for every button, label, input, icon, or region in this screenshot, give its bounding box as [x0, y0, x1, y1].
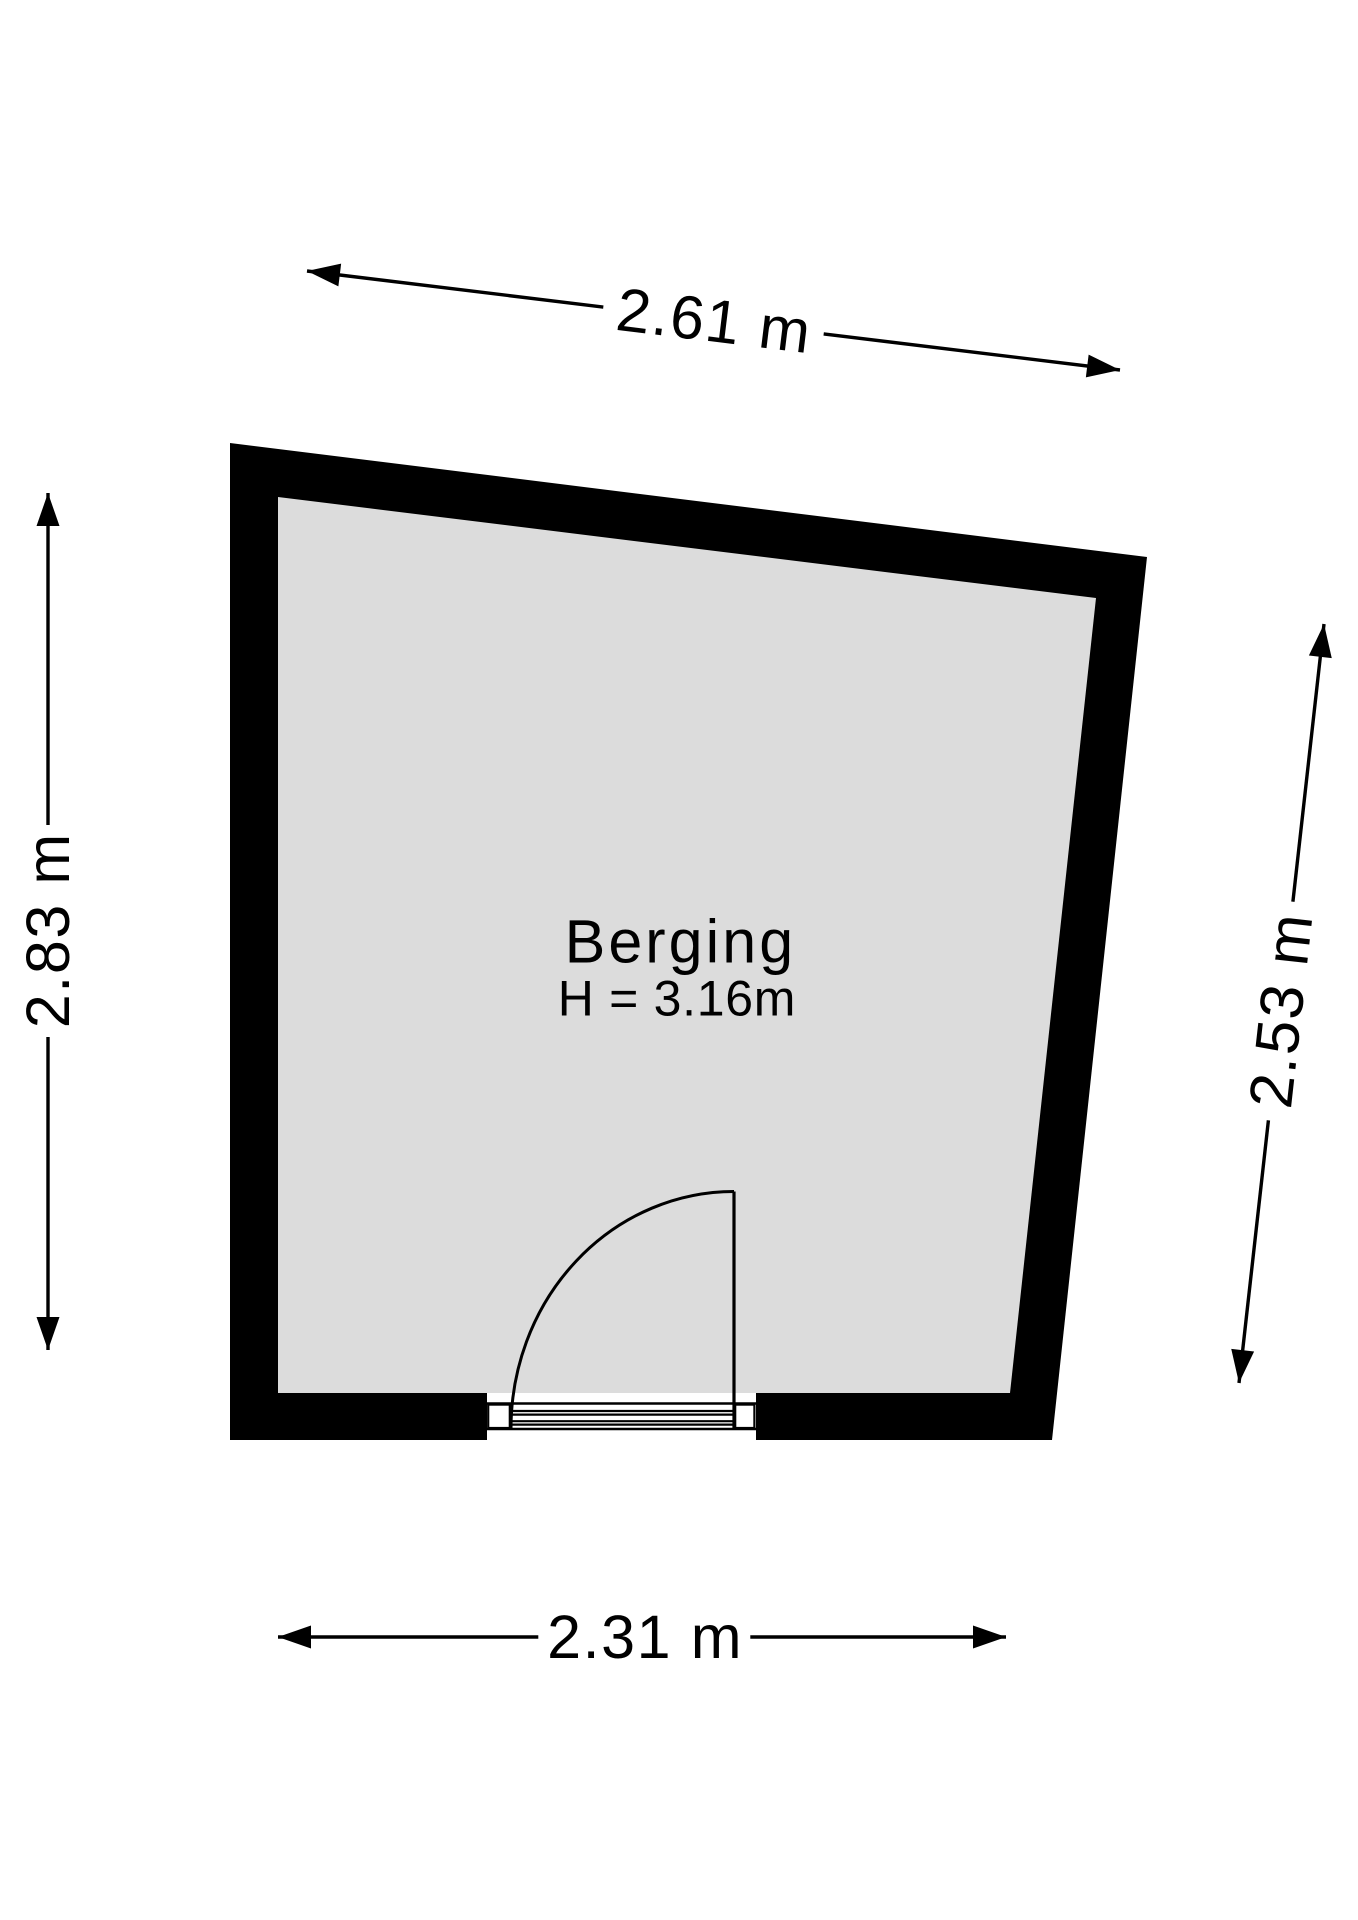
- svg-text:Berging: Berging: [565, 908, 797, 976]
- svg-text:2.83 m: 2.83 m: [14, 832, 82, 1028]
- svg-text:2.31 m: 2.31 m: [547, 1603, 743, 1671]
- svg-text:H = 3.16m: H = 3.16m: [558, 970, 796, 1026]
